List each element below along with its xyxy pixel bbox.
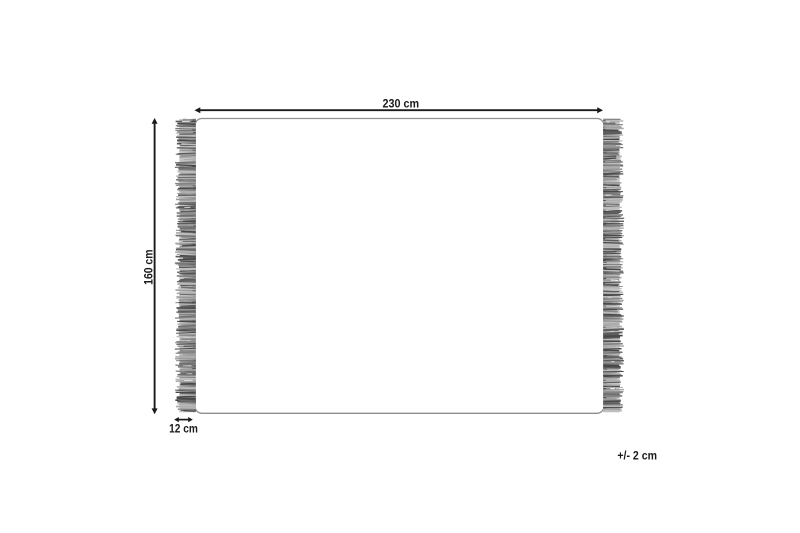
svg-text:+/- 2 cm: +/- 2 cm [617,449,657,462]
svg-text:230 cm: 230 cm [383,98,420,111]
svg-text:160 cm: 160 cm [143,250,156,285]
svg-text:12 cm: 12 cm [169,422,198,435]
